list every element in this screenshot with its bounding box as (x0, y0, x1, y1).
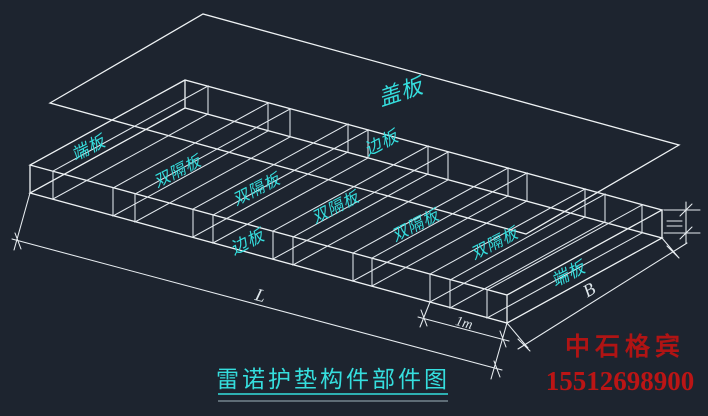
reno-mattress-diagram: 盖板 端板 边板 双隔板 双隔板 双隔板 双隔板 双隔板 边板 端板 L B 1… (0, 0, 708, 416)
label-double-diaphragm-3: 双隔板 (312, 187, 362, 228)
dim-label-width: B (579, 278, 599, 301)
label-side-plate-back: 边板 (364, 124, 401, 160)
label-double-diaphragm-1: 双隔板 (154, 151, 204, 192)
company-name: 中石格宾 (565, 332, 685, 361)
label-cover-plate: 盖板 (380, 72, 425, 112)
cad-drawing-canvas: 盖板 端板 边板 双隔板 双隔板 双隔板 双隔板 双隔板 边板 端板 L B 1… (0, 0, 708, 416)
label-double-diaphragm-5: 双隔板 (471, 223, 521, 264)
label-double-diaphragm-2: 双隔板 (233, 169, 283, 210)
dim-label-length: L (252, 284, 268, 306)
label-double-diaphragm-4: 双隔板 (392, 205, 442, 246)
dim-label-cell-width: 1m (454, 314, 474, 333)
phone-number: 15512698900 (546, 366, 695, 396)
drawing-title: 雷诺护垫构件部件图 (216, 366, 450, 392)
label-side-plate-front: 边板 (230, 223, 267, 259)
